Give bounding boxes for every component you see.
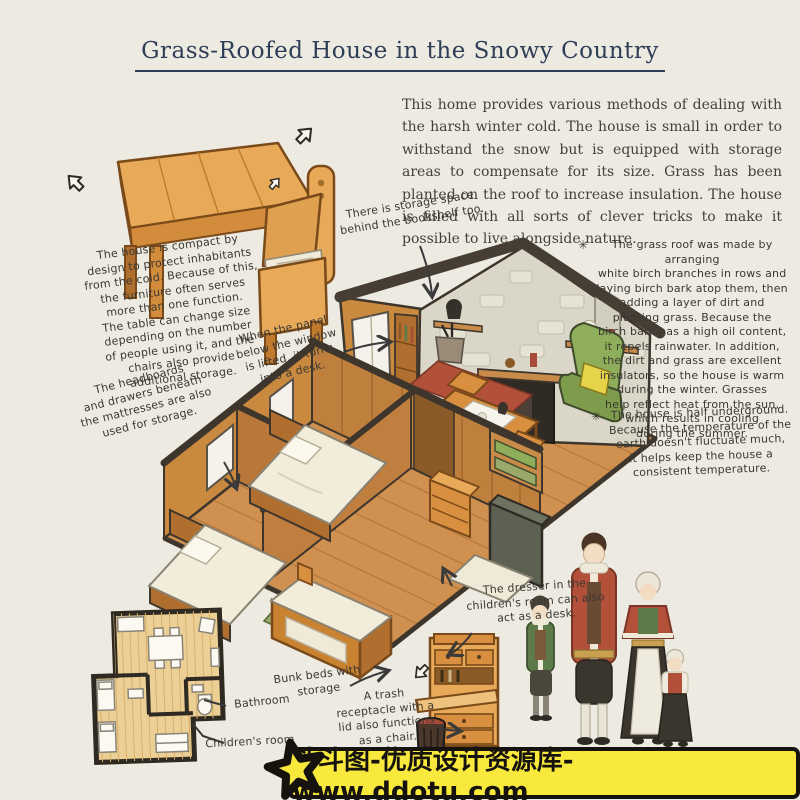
- watermark-star-icon: [256, 734, 338, 800]
- star-marker-icon: ✳: [591, 409, 602, 425]
- plan-toilet: [197, 698, 212, 714]
- watermark-banner: 斗斗图-优质设计资源库-www.ddotu.com: [288, 747, 800, 799]
- family-illustration: [510, 512, 725, 767]
- page-title-text: Grass-Roofed House in the Snowy Country: [135, 38, 665, 72]
- page-title: Grass-Roofed House in the Snowy Country: [0, 38, 800, 72]
- watermark-text: 斗斗图-优质设计资源库-www.ddotu.com: [292, 740, 796, 800]
- star-marker-icon: ✳: [578, 238, 588, 254]
- father-figure: [572, 533, 616, 746]
- plan-table: [148, 635, 183, 660]
- note-underground: ✳ The house is half underground. Because…: [591, 402, 798, 482]
- plan-sink: [192, 685, 203, 692]
- book-page: Grass-Roofed House in the Snowy Country …: [0, 0, 800, 800]
